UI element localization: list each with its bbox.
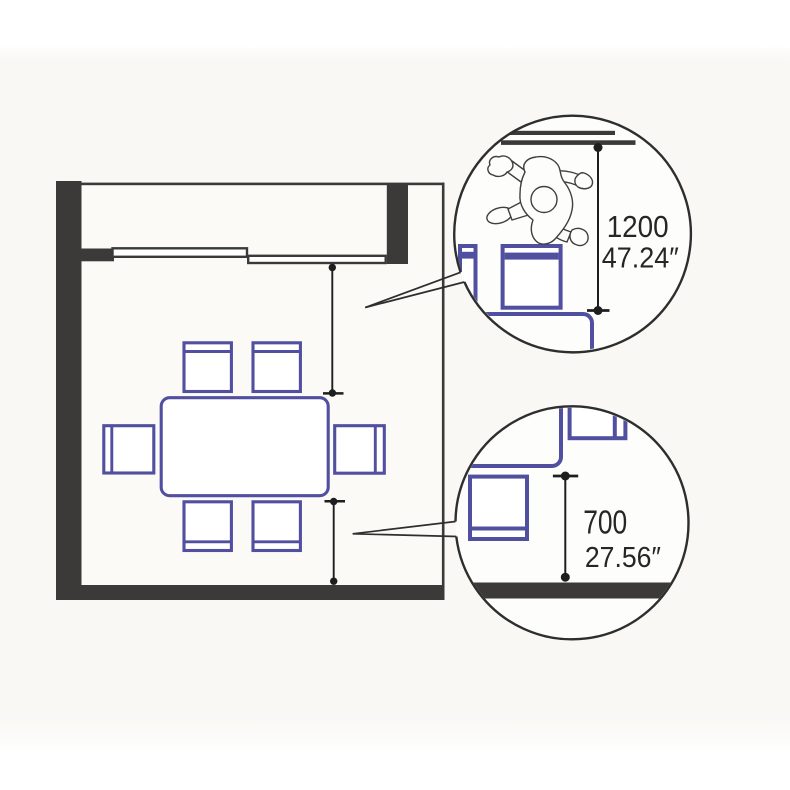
svg-text:27.56″: 27.56″ [585, 542, 661, 574]
svg-text:700: 700 [583, 504, 627, 541]
svg-text:47.24″: 47.24″ [602, 243, 679, 275]
svg-text:1200: 1200 [607, 210, 669, 244]
